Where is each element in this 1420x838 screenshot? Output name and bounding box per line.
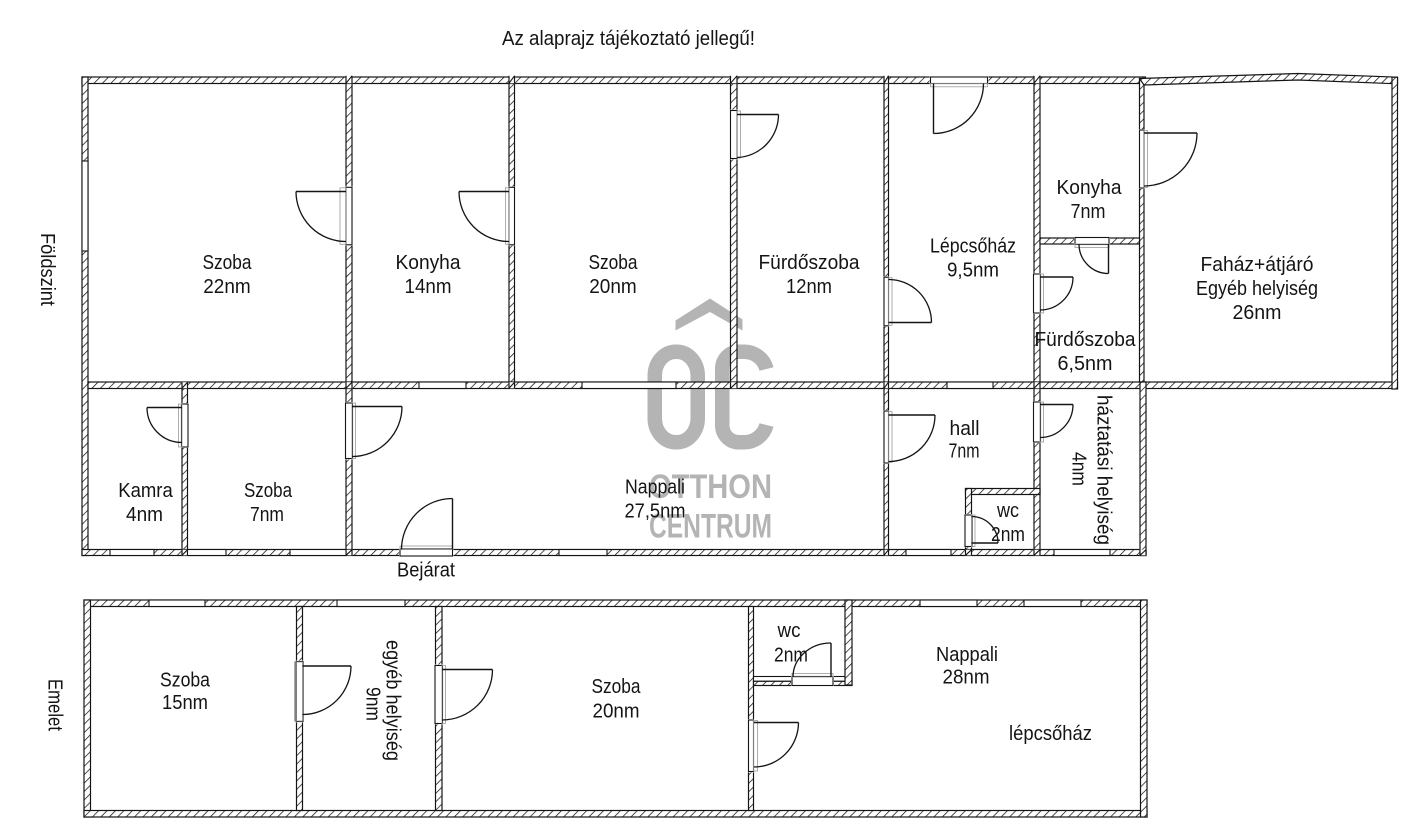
svg-text:Fürdőszoba: Fürdőszoba [1035, 328, 1137, 351]
svg-text:26nm: 26nm [1233, 301, 1282, 324]
svg-text:6,5nm: 6,5nm [1058, 352, 1113, 375]
svg-text:Fürdőszoba: Fürdőszoba [759, 251, 861, 274]
svg-text:7nm: 7nm [949, 440, 980, 463]
svg-text:Konyha: Konyha [1057, 176, 1123, 199]
svg-text:15nm: 15nm [162, 691, 208, 714]
svg-text:14nm: 14nm [405, 275, 452, 298]
svg-text:2nm: 2nm [774, 644, 808, 667]
svg-text:Konyha: Konyha [396, 251, 462, 274]
svg-text:Szoba: Szoba [160, 669, 211, 692]
svg-text:9nm: 9nm [362, 687, 385, 721]
svg-text:wc: wc [777, 619, 801, 642]
svg-text:Kamra: Kamra [118, 479, 173, 502]
svg-text:hall: hall [950, 417, 980, 440]
svg-text:wc: wc [996, 499, 1019, 522]
svg-text:Szoba: Szoba [203, 251, 252, 274]
svg-text:4nm: 4nm [126, 503, 163, 526]
svg-text:Bejárat: Bejárat [397, 559, 455, 582]
svg-text:Szoba: Szoba [244, 479, 292, 502]
svg-text:28nm: 28nm [943, 666, 990, 689]
svg-text:Az alaprajz tájékoztató jelleg: Az alaprajz tájékoztató jellegű! [502, 27, 755, 50]
svg-text:12nm: 12nm [786, 275, 832, 298]
svg-text:4nm: 4nm [1068, 452, 1091, 486]
svg-text:Földszint: Földszint [36, 233, 59, 306]
svg-text:27,5nm: 27,5nm [625, 500, 686, 523]
svg-text:Faház+átjáró: Faház+átjáró [1201, 253, 1314, 276]
svg-text:7nm: 7nm [1071, 200, 1106, 223]
svg-text:20nm: 20nm [589, 275, 637, 298]
svg-text:lépcsőház: lépcsőház [1009, 722, 1092, 745]
svg-text:7nm: 7nm [250, 503, 284, 526]
svg-text:Egyéb helyiség: Egyéb helyiség [1196, 277, 1318, 300]
svg-text:9,5nm: 9,5nm [947, 259, 999, 282]
svg-text:háztatási helyiség: háztatási helyiség [1093, 395, 1116, 545]
svg-text:20nm: 20nm [593, 700, 640, 723]
svg-text:Lépcsőház: Lépcsőház [930, 235, 1016, 258]
svg-text:Szoba: Szoba [592, 675, 641, 698]
svg-text:Nappali: Nappali [625, 476, 685, 499]
svg-text:Nappali: Nappali [936, 643, 998, 666]
svg-text:22nm: 22nm [203, 275, 251, 298]
svg-text:Szoba: Szoba [589, 251, 638, 274]
svg-text:Emelet: Emelet [44, 679, 67, 731]
svg-text:2nm: 2nm [991, 523, 1025, 546]
